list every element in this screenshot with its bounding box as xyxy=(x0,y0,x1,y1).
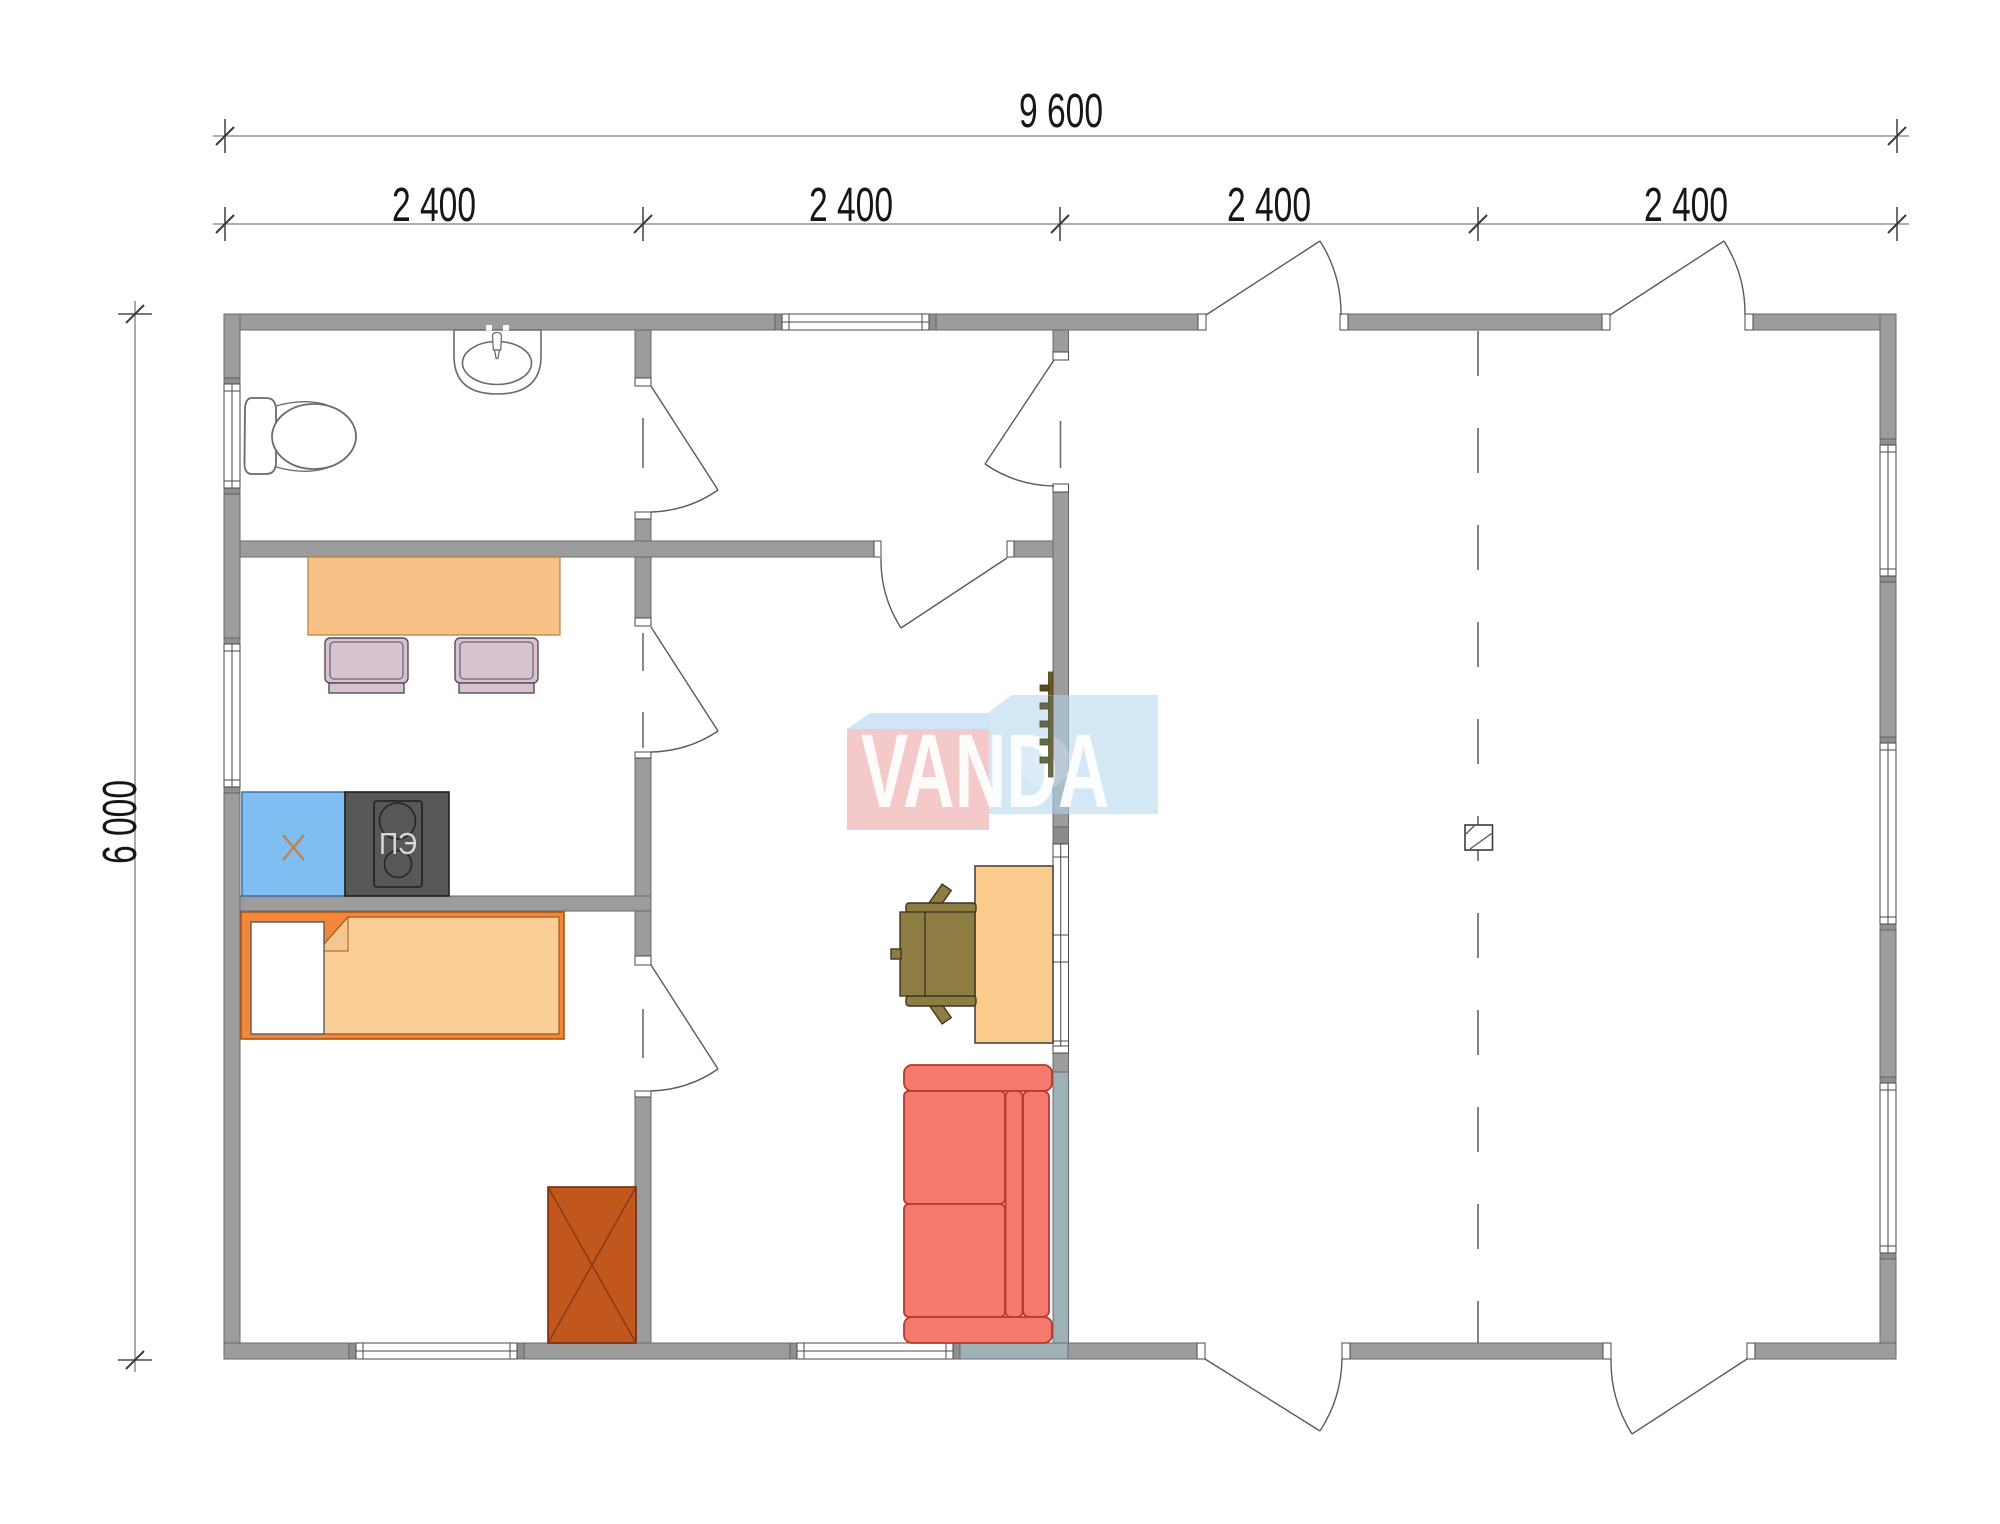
svg-text:ПЭ: ПЭ xyxy=(379,827,417,861)
svg-text:2 400: 2 400 xyxy=(392,177,476,231)
svg-text:2 400: 2 400 xyxy=(809,177,893,231)
svg-text:9 600: 9 600 xyxy=(1019,83,1103,137)
svg-text:2 400: 2 400 xyxy=(1227,177,1311,231)
svg-text:VANDA: VANDA xyxy=(861,713,1110,830)
svg-text:6 000: 6 000 xyxy=(92,780,146,864)
svg-text:2 400: 2 400 xyxy=(1644,177,1728,231)
